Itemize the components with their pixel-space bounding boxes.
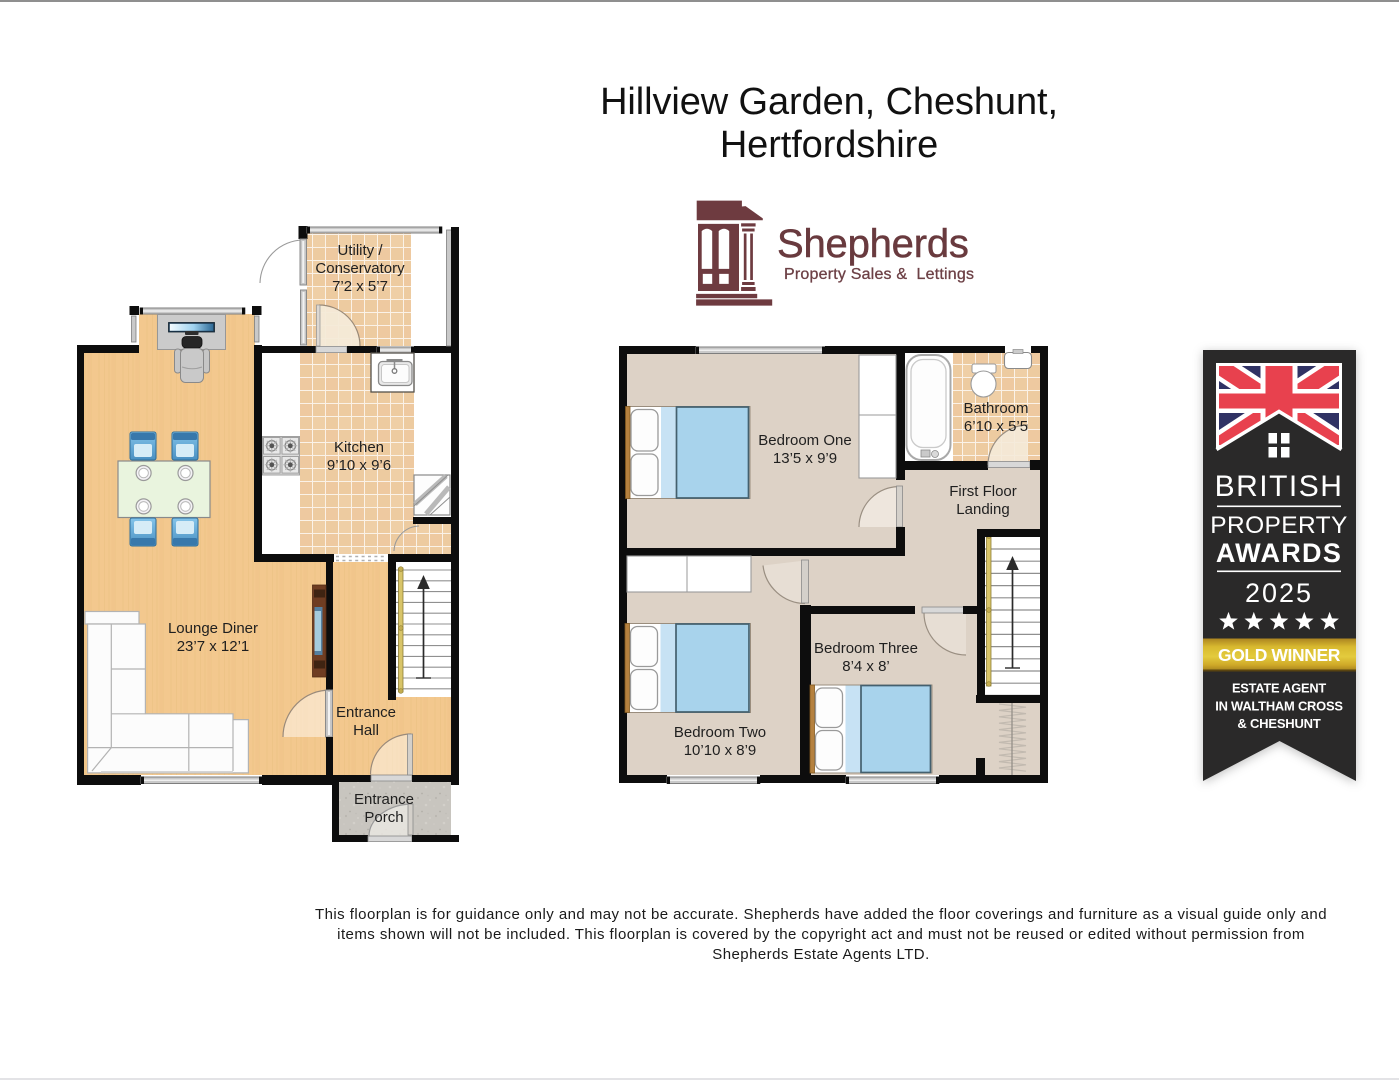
- svg-text:10’10 x 8’9: 10’10 x 8’9: [684, 742, 757, 759]
- svg-text:AWARDS: AWARDS: [1216, 538, 1342, 568]
- svg-text:23’7 x 12’1: 23’7 x 12’1: [177, 638, 250, 655]
- svg-text:2025: 2025: [1245, 578, 1313, 608]
- svg-text:& CHESHUNT: & CHESHUNT: [1237, 716, 1320, 731]
- svg-text:13’5 x 9’9: 13’5 x 9’9: [773, 450, 837, 467]
- svg-text:Porch: Porch: [364, 809, 403, 826]
- svg-text:BRITISH: BRITISH: [1215, 470, 1344, 503]
- svg-text:Utility /: Utility /: [338, 242, 384, 259]
- svg-text:Kitchen: Kitchen: [334, 439, 384, 456]
- svg-text:Bedroom Two: Bedroom Two: [674, 724, 766, 741]
- svg-text:PROPERTY: PROPERTY: [1210, 512, 1348, 539]
- svg-text:8’4 x 8’: 8’4 x 8’: [842, 658, 890, 675]
- svg-text:Entrance: Entrance: [336, 704, 396, 721]
- svg-text:Bedroom One: Bedroom One: [758, 432, 851, 449]
- svg-text:Hall: Hall: [353, 722, 379, 739]
- svg-text:Conservatory: Conservatory: [315, 260, 405, 277]
- svg-text:Bedroom Three: Bedroom Three: [814, 640, 918, 657]
- svg-text:IN WALTHAM CROSS: IN WALTHAM CROSS: [1215, 699, 1343, 714]
- svg-text:Lounge Diner: Lounge Diner: [168, 620, 258, 637]
- svg-text:Bathroom: Bathroom: [963, 400, 1028, 417]
- svg-text:First Floor: First Floor: [949, 483, 1017, 500]
- svg-text:9’10 x 9’6: 9’10 x 9’6: [327, 457, 391, 474]
- svg-text:7’2 x 5’7: 7’2 x 5’7: [332, 278, 388, 295]
- svg-text:ESTATE AGENT: ESTATE AGENT: [1232, 681, 1326, 696]
- svg-text:GOLD WINNER: GOLD WINNER: [1218, 645, 1341, 665]
- svg-text:Landing: Landing: [956, 501, 1009, 518]
- svg-text:Entrance: Entrance: [354, 791, 414, 808]
- svg-text:6’10 x 5’5: 6’10 x 5’5: [964, 418, 1028, 435]
